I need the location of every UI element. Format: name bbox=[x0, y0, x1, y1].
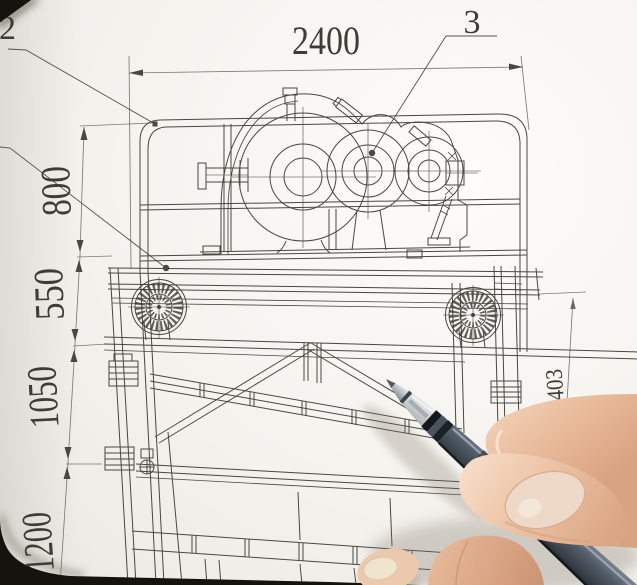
photo-of-engineering-drawing: 2400 2 3 800 550 1050 1200 1403 bbox=[0, 0, 637, 585]
dim-1050-label: 1050 bbox=[19, 365, 68, 429]
dim-550-label: 550 bbox=[26, 267, 74, 321]
callout-3-label: 3 bbox=[464, 4, 481, 41]
dim-800-label: 800 bbox=[33, 165, 81, 217]
dim-top-label: 2400 bbox=[292, 18, 360, 63]
